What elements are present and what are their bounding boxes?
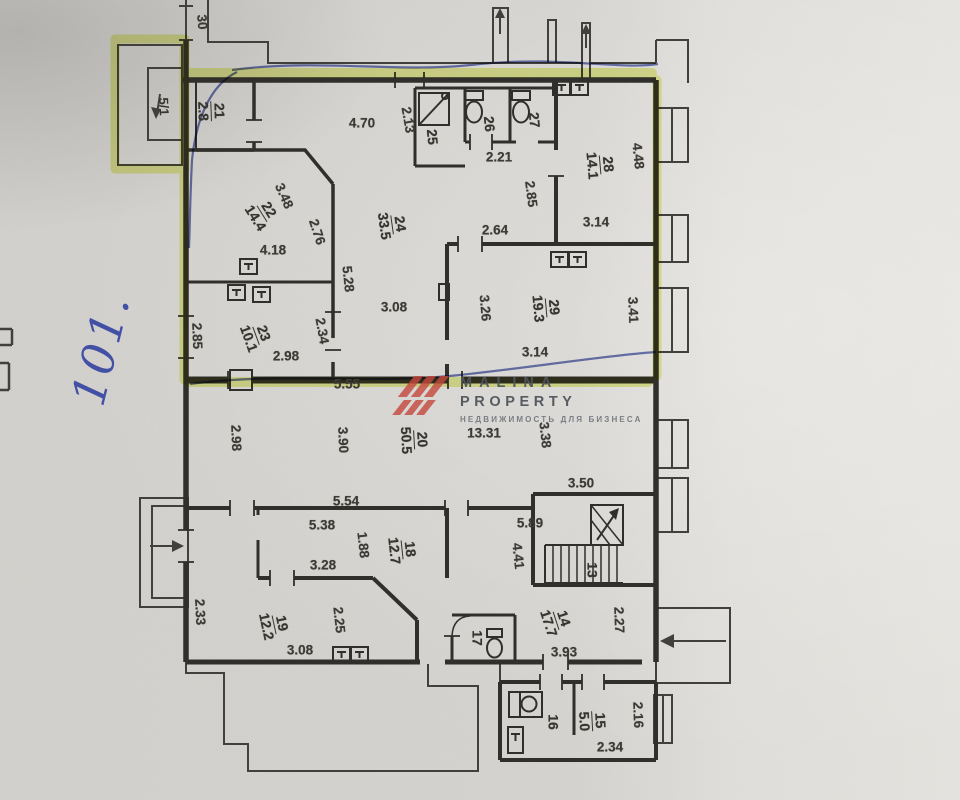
room-label-22: 2214.4 [242,194,283,234]
dimension-label: 1.88 [355,531,371,559]
room-label-18: 1812.7 [385,535,419,565]
room-label-28: 2814.1 [583,150,616,180]
dimension-label: 4.18 [260,243,286,257]
dimension-label: 2.98 [229,425,243,452]
dimension-label: 3.14 [522,345,548,359]
room-label-13: 13 [584,562,599,578]
dimension-label: 13.31 [467,426,501,440]
watermark-title-line2: PROPERTY [460,393,577,412]
dimension-label: 3.41 [626,297,640,324]
dimension-label: 5.38 [309,518,335,532]
watermark-logo-icon [390,376,456,418]
room-label-27: 27 [526,112,542,129]
watermark-title-line1: MALINA [460,374,577,393]
dimension-label: 2.16 [631,702,645,729]
room-label-19: 1912.2 [256,608,292,641]
dimension-label: 5.28 [340,265,356,293]
dimension-label: 4.41 [510,542,526,570]
dimension-label: 5.55 [334,377,360,391]
room-label-29: 2919.3 [529,293,562,323]
room-label-16: 16 [545,714,560,730]
dimension-label: 3.90 [336,427,350,454]
room-label-26: 26 [481,116,497,133]
dimension-label: 3.26 [477,294,493,321]
dimension-label: 2.21 [486,150,512,164]
dimension-label: 2.13 [399,106,417,134]
dimension-label: 2.25 [331,606,347,634]
room-label-15: 155.0 [576,710,608,731]
dimension-label: 30 [195,14,210,30]
room-label-14: 1417.7 [537,603,575,639]
dimension-label: 3.08 [287,643,313,657]
dimension-label: 3.08 [381,300,407,314]
dimension-label: 3.28 [310,558,336,572]
dimension-label: 5.89 [517,516,543,530]
dimension-label: 2.76 [307,217,328,246]
dimension-label: 5.54 [333,494,359,508]
dimension-label: 2.33 [193,599,208,626]
dimension-label: 2.85 [523,180,540,208]
unit-ref-label: 5/1 [156,89,172,124]
dimension-label: 2.98 [273,349,299,363]
dimension-label: 3.38 [537,421,553,449]
room-label-21: 212.8 [195,101,227,122]
watermark-subtitle: НЕДВИЖИМОСТЬ ДЛЯ БИЗНЕСА [460,415,643,424]
dimension-label: 3.50 [568,476,594,490]
dimension-label: 2.85 [190,323,204,350]
room-label-20: 2050.5 [398,426,431,455]
floorplan-scan: 212.82214.42310.12433.52526272814.12919.… [0,0,960,800]
room-label-23: 2310.1 [237,318,276,354]
room-label-25: 25 [424,129,440,146]
dimension-label: 3.14 [583,215,609,229]
dimension-label: 3.93 [551,645,577,659]
dimension-label: 2.64 [482,223,508,237]
dimension-label: 2.34 [597,740,623,754]
dimension-label: 2.27 [612,607,626,634]
room-label-17: 17 [469,630,484,646]
dimension-label: 2.34 [313,317,331,345]
dimension-label: 4.48 [630,142,646,170]
dimension-label: 4.70 [349,116,375,130]
room-label-24: 2433.5 [375,209,410,240]
